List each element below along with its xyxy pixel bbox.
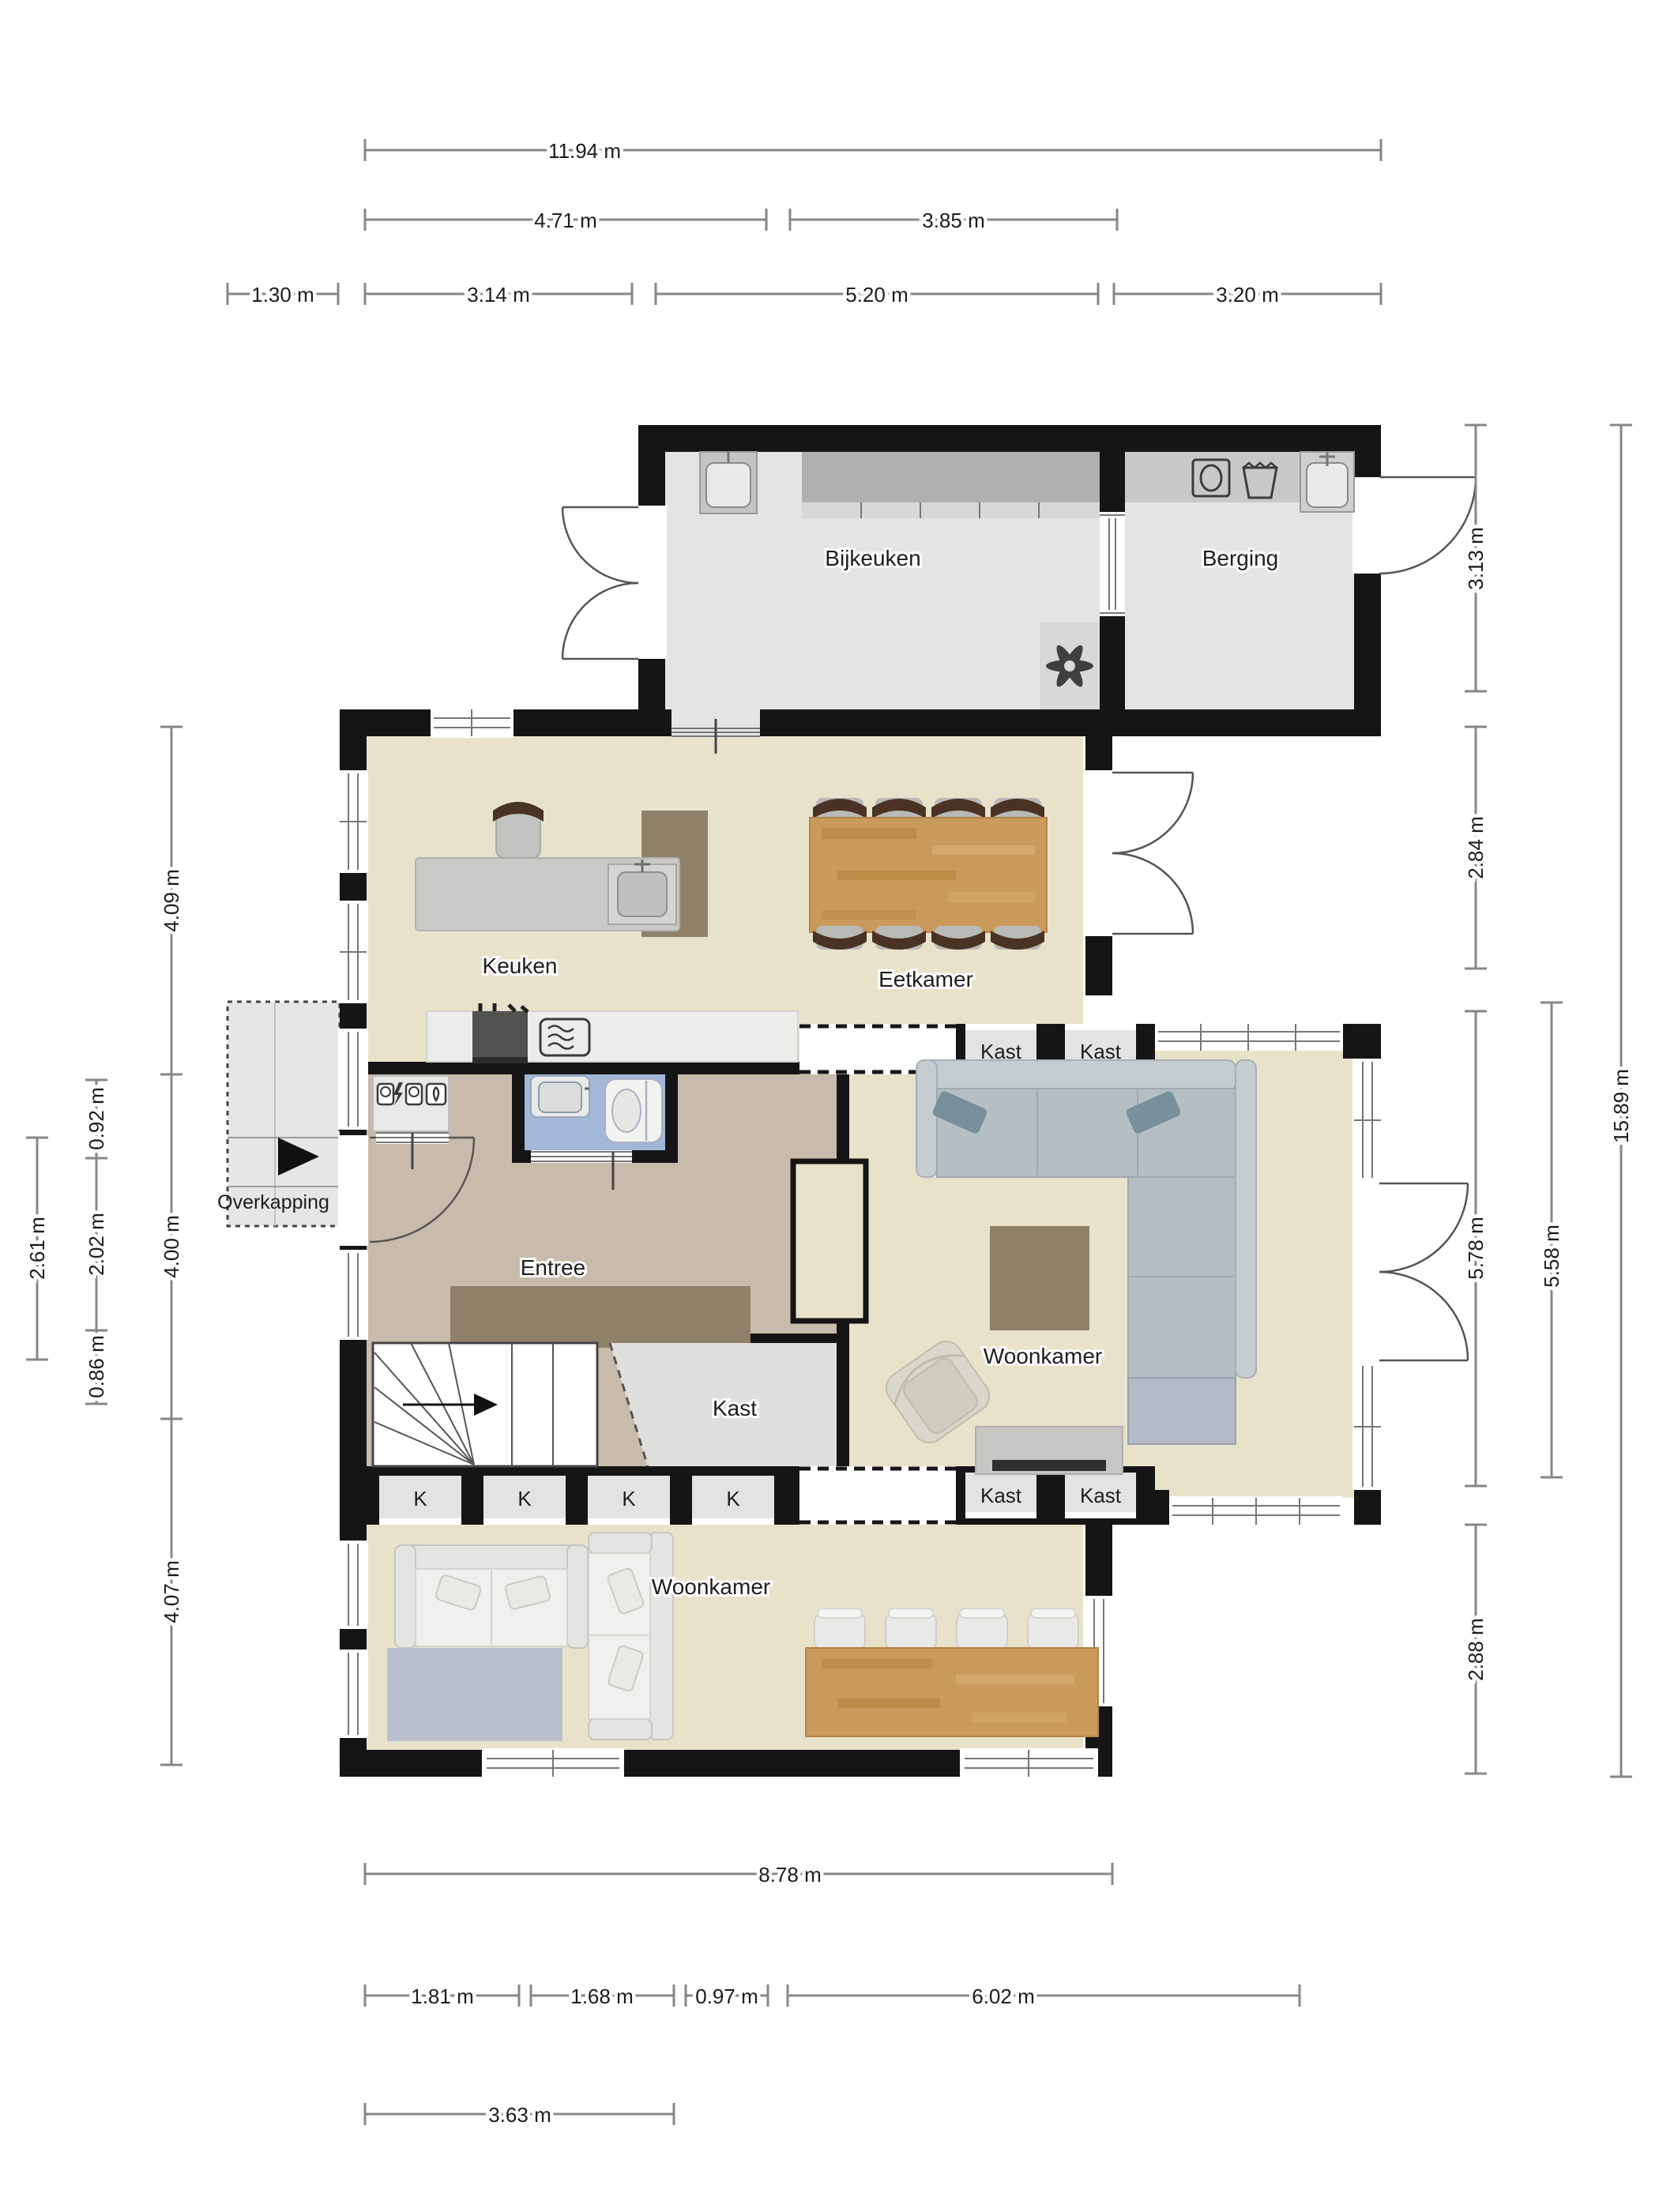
svg-text:2.84 m: 2.84 m	[1464, 816, 1488, 879]
room-label-eetkamer: Eetkamer	[878, 967, 973, 991]
room-label-overkapping: Overkapping	[217, 1191, 329, 1213]
dining-set	[810, 798, 1047, 950]
svg-text:6.02 m: 6.02 m	[972, 1984, 1035, 2008]
dim-overkapping-depth: 2.61 m	[25, 1138, 49, 1360]
dim-berging-depth: 3.13 m	[1464, 425, 1488, 691]
door-bijkeuken-left	[562, 506, 667, 659]
fireplace	[793, 1161, 866, 1321]
dim-seg-168: 1.68 m	[531, 1984, 674, 2008]
kitchen-island	[416, 858, 679, 931]
room-label-keuken: Keuken	[483, 954, 558, 978]
svg-text:3.63 m: 3.63 m	[488, 2103, 551, 2127]
svg-text:15.89 m: 15.89 m	[1609, 1069, 1633, 1143]
svg-text:11.94 m: 11.94 m	[548, 139, 621, 163]
svg-text:0.92 m: 0.92 m	[85, 1087, 108, 1150]
sofa-three-seat	[589, 1533, 673, 1740]
bar-stool	[493, 802, 544, 858]
svg-text:2.61 m: 2.61 m	[25, 1217, 49, 1280]
dim-eetkamer-width: 3.85 m	[790, 209, 1117, 232]
floorplan-page: Bijkeuken Berging Keuken Eetkamer Entree…	[0, 0, 1659, 2212]
svg-text:0.86 m: 0.86 m	[85, 1335, 108, 1398]
kast-label-top-2: Kast	[1080, 1040, 1122, 1063]
dim-annex-lower-depth: 2.88 m	[1464, 1525, 1488, 1774]
svg-text:2.88 m: 2.88 m	[1464, 1618, 1488, 1681]
toilet-icon	[605, 1079, 662, 1142]
kast-label-bottom-1: Kast	[980, 1484, 1022, 1507]
window-keuken-top	[431, 708, 513, 738]
svg-text:4.09 m: 4.09 m	[160, 869, 183, 932]
dim-entree-zone-width: 3.14 m	[365, 283, 632, 307]
meterkast	[373, 1076, 449, 1131]
dim-seg-181: 1.81 m	[365, 1984, 519, 2008]
dim-keuken-width: 4.71 m	[365, 209, 766, 232]
door-utility-divider	[1100, 512, 1125, 616]
room-label-woonkamer-annex: Woonkamer	[984, 1344, 1102, 1368]
wall-entree-top	[367, 1062, 837, 1074]
entree-rug	[450, 1286, 750, 1348]
wall-toilet-bottom-b	[632, 1150, 678, 1163]
svg-text:5.78 m: 5.78 m	[1464, 1217, 1488, 1280]
glass-wall-annex-bottom	[1169, 1496, 1343, 1525]
room-label-woonkamer-main: Woonkamer	[652, 1574, 770, 1599]
dim-bijkeuken-width: 5.20 m	[656, 283, 1098, 307]
dim-seg-086: 0.86 m	[85, 1330, 108, 1404]
post-annex-sw	[1155, 1490, 1169, 1525]
bijkeuken-counter	[802, 452, 1100, 502]
svg-text:0.97 m: 0.97 m	[695, 1984, 758, 2008]
dim-overkapping-width: 1.30 m	[228, 283, 338, 307]
dim-seg-602: 6.02 m	[788, 1984, 1300, 2008]
dim-total-depth: 15.89 m	[1609, 425, 1633, 1777]
dim-keuken-depth: 4.09 m	[160, 727, 183, 1074]
dim-woonkamer-depth: 4.07 m	[160, 1419, 183, 1765]
window-left-4	[338, 1650, 368, 1738]
wall-toilet-left	[512, 1062, 525, 1150]
window-bottom-1	[482, 1748, 624, 1778]
dim-seg-202: 2.02 m	[85, 1158, 108, 1330]
main-rug	[387, 1648, 562, 1741]
locker-label-4: K	[726, 1487, 740, 1510]
svg-text:1.30 m: 1.30 m	[251, 283, 314, 307]
svg-text:1.81 m: 1.81 m	[411, 1984, 474, 2008]
room-label-kast: Kast	[713, 1396, 757, 1420]
dim-total-width: 11.94 m	[365, 139, 1381, 163]
svg-text:4.71 m: 4.71 m	[534, 209, 597, 232]
dim-eetkamer-depth: 2.84 m	[1464, 727, 1488, 969]
dim-seg-097: 0.97 m	[686, 1984, 768, 2008]
tv-icon	[992, 1460, 1106, 1471]
wall-toilet-right	[665, 1062, 678, 1150]
post-annex-ne	[1343, 1024, 1381, 1059]
svg-text:5.20 m: 5.20 m	[845, 283, 908, 307]
glass-wall-annex-top	[1155, 1022, 1343, 1051]
floorplan-canvas: Bijkeuken Berging Keuken Eetkamer Entree…	[0, 0, 1659, 2212]
locker-label-2: K	[517, 1487, 532, 1510]
window-bottom-2	[960, 1748, 1098, 1778]
svg-text:4.00 m: 4.00 m	[160, 1215, 183, 1278]
svg-text:3.14 m: 3.14 m	[467, 283, 530, 307]
dim-seg-092: 0.92 m	[85, 1080, 108, 1158]
window-porch-bottom	[338, 1250, 368, 1340]
glass-wall-annex-right-lower	[1352, 1363, 1382, 1490]
sink-icon	[1300, 452, 1354, 512]
room-label-entree: Entree	[521, 1255, 586, 1280]
stairs	[373, 1343, 597, 1466]
kast-label-top-1: Kast	[980, 1040, 1022, 1063]
room-label-bijkeuken: Bijkeuken	[825, 546, 920, 570]
door-eetkamer-right	[1084, 770, 1193, 936]
svg-text:3.20 m: 3.20 m	[1216, 283, 1279, 307]
svg-text:3.13 m: 3.13 m	[1464, 527, 1488, 590]
kitchen-wall-counter	[427, 1003, 798, 1063]
svg-text:8.78 m: 8.78 m	[758, 1863, 822, 1887]
svg-text:2.02 m: 2.02 m	[85, 1213, 108, 1276]
svg-text:1.68 m: 1.68 m	[570, 1984, 634, 2008]
locker-label-3: K	[622, 1487, 636, 1510]
sink-icon	[700, 452, 757, 513]
dim-entree-depth: 4.00 m	[160, 1074, 183, 1419]
dim-annex-glass-depth: 5.58 m	[1540, 1003, 1563, 1477]
open-passage-woonkamer-annex	[799, 1466, 956, 1525]
fan-icon	[1040, 623, 1100, 709]
window-left-2	[338, 901, 368, 1003]
wall-utility-top	[638, 425, 1381, 452]
stove-icon	[472, 1003, 528, 1063]
room-label-berging: Berging	[1202, 546, 1279, 570]
door-berging-right	[1352, 477, 1476, 574]
sofa-footstool	[1128, 1378, 1236, 1444]
window-left-1	[338, 770, 368, 873]
dim-main-width: 8.78 m	[365, 1863, 1112, 1887]
dim-berging-width: 3.20 m	[1114, 283, 1381, 307]
sofa-two-seat	[395, 1545, 588, 1648]
post-annex-se	[1354, 1490, 1381, 1525]
window-left-3	[338, 1540, 368, 1629]
tv-cabinet	[976, 1427, 1123, 1474]
locker-label-1: K	[413, 1487, 427, 1510]
svg-text:4.07 m: 4.07 m	[160, 1560, 183, 1623]
svg-text:5.58 m: 5.58 m	[1540, 1224, 1563, 1288]
kast-label-bottom-2: Kast	[1080, 1484, 1122, 1507]
glass-wall-annex-right-upper	[1352, 1059, 1382, 1181]
svg-text:3.85 m: 3.85 m	[922, 209, 985, 232]
door-annex-garden	[1352, 1181, 1468, 1363]
bijkeuken-counter-front	[802, 502, 1100, 518]
sofa-set-main	[387, 1533, 673, 1741]
window-porch-top	[338, 1029, 368, 1130]
toilet-sink-icon	[531, 1076, 589, 1117]
dim-annex-depth: 5.78 m	[1464, 1011, 1488, 1486]
dim-seg-363: 3.63 m	[365, 2103, 674, 2127]
wall-toilet-bottom-a	[512, 1150, 531, 1163]
annex-rug	[990, 1226, 1089, 1330]
